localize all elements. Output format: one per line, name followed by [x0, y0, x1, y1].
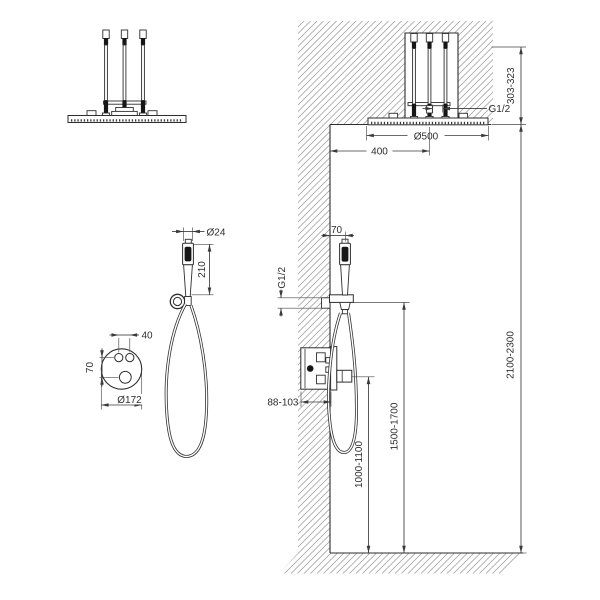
figure-ceiling-shower-side-view — [68, 30, 186, 123]
dim-hand-shower-wall-distance: 70 — [331, 225, 343, 236]
shower-hose — [166, 304, 207, 457]
dim-valve-plate-diameter: Ø172 — [117, 395, 142, 406]
dim-head-connection: G1/2 — [489, 104, 511, 115]
hand-shower-grip — [184, 265, 193, 297]
drawing-canvas: Ø24 210 40 70 — [0, 0, 600, 600]
hand-shower-grip-section — [341, 265, 350, 295]
valve-handle-main — [119, 371, 131, 383]
dim-valve-height: 1000-1100 — [354, 441, 365, 489]
shower-disc-section — [368, 118, 488, 125]
dim-valve-recess-depth: 88-103 — [267, 397, 299, 408]
dim-handshower-diameter: Ø24 — [207, 228, 226, 239]
dim-valve-handle-vertical-spacing: 70 — [85, 362, 96, 374]
dim-outlet-connection: G1/2 — [277, 267, 288, 289]
valve-handle-small — [126, 354, 134, 362]
dim-outlet-height: 1500-1700 — [390, 402, 401, 450]
shower-disc — [68, 116, 186, 123]
valve-section — [301, 347, 352, 390]
wall-ceiling-hatch — [298, 21, 493, 553]
dim-ceiling-height: 2100-2300 — [506, 331, 517, 379]
technical-drawing-shower-installation: Ø24 210 40 70 — [0, 0, 600, 600]
floor-hatch — [279, 553, 523, 574]
dim-valve-handle-spacing: 40 — [142, 331, 154, 342]
figure-hand-shower-detail: Ø24 210 — [166, 228, 226, 457]
wall-outlet-elbow — [322, 298, 331, 308]
valve-knob-section — [337, 370, 352, 382]
dim-handshower-length: 210 — [197, 261, 208, 278]
valve-handle-small — [115, 354, 123, 362]
dim-recess-height: 303-323 — [506, 67, 517, 104]
dim-head-wall-distance: 400 — [371, 146, 388, 157]
wall-outlet-bracket — [330, 295, 354, 303]
figure-thermostat-valve-detail: 40 70 Ø172 — [85, 331, 153, 410]
dim-head-diameter: Ø500 — [414, 131, 439, 142]
figure-installation-section: G1/2 Ø500 400 303-323 2100-2300 70 — [267, 21, 526, 574]
